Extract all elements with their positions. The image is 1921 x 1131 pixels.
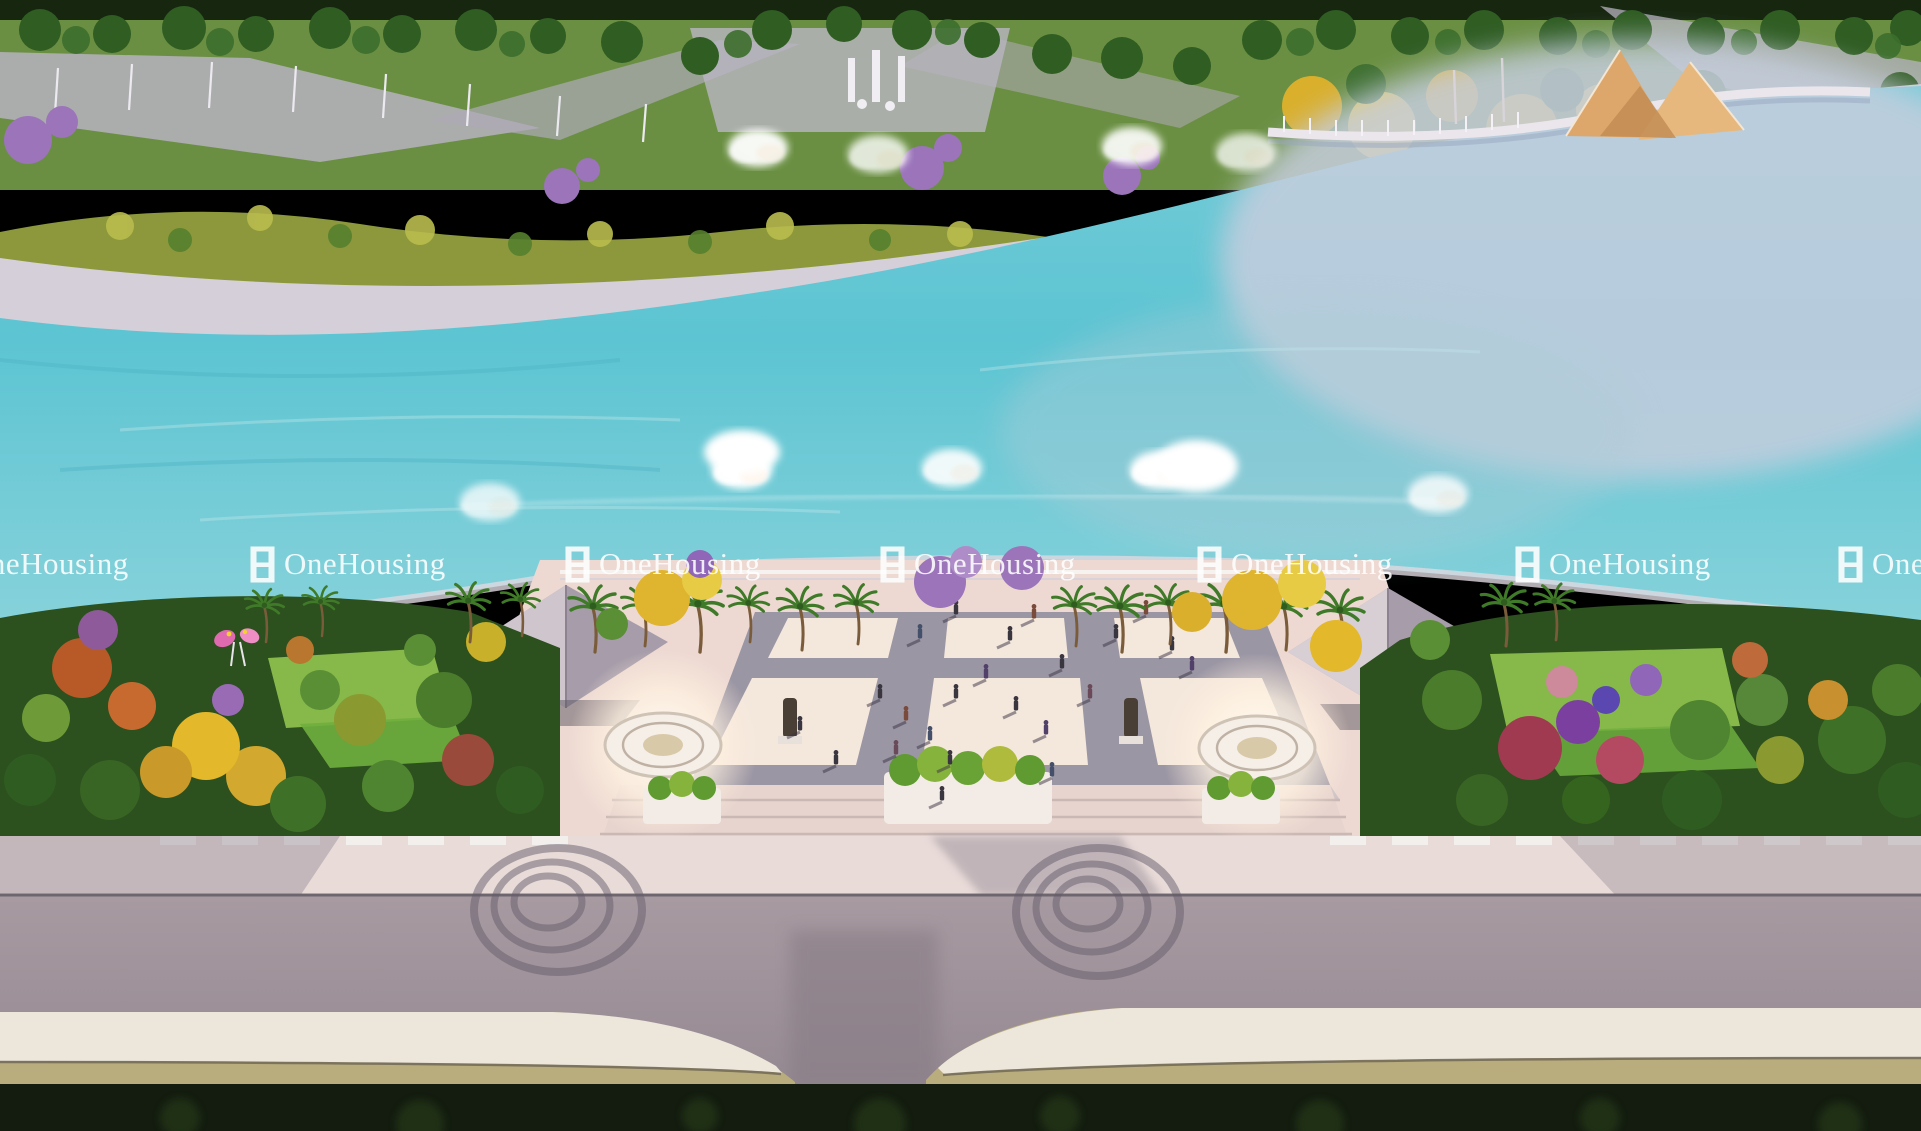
balcony-slab-right: [926, 1008, 1921, 1092]
waterfront-park-rendering: OneHousing OneHousing OneHousing OneHous…: [0, 0, 1921, 1131]
bottom-dark-strip: [0, 1084, 1921, 1131]
scene-canvas: [0, 0, 1921, 1131]
promenade-sidewalk: [0, 836, 1921, 902]
